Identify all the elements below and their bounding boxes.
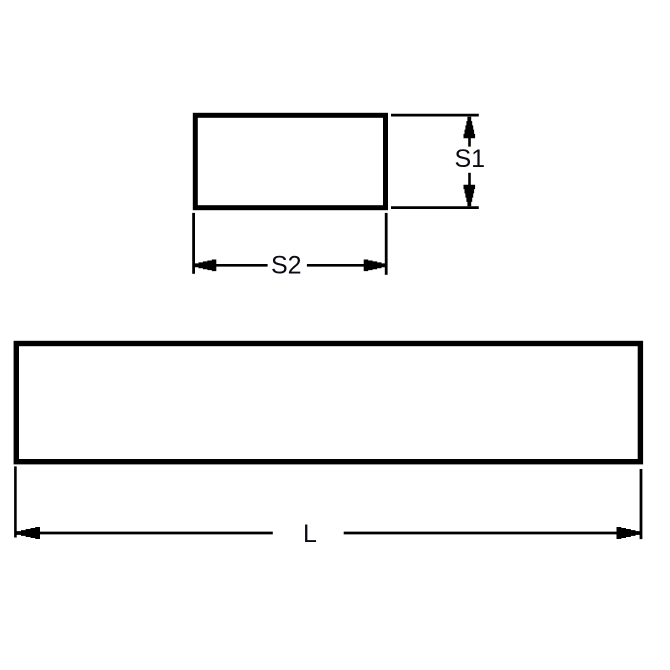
svg-text:L: L bbox=[303, 520, 317, 548]
svg-text:S2: S2 bbox=[271, 252, 302, 280]
svg-text:S1: S1 bbox=[455, 145, 486, 173]
